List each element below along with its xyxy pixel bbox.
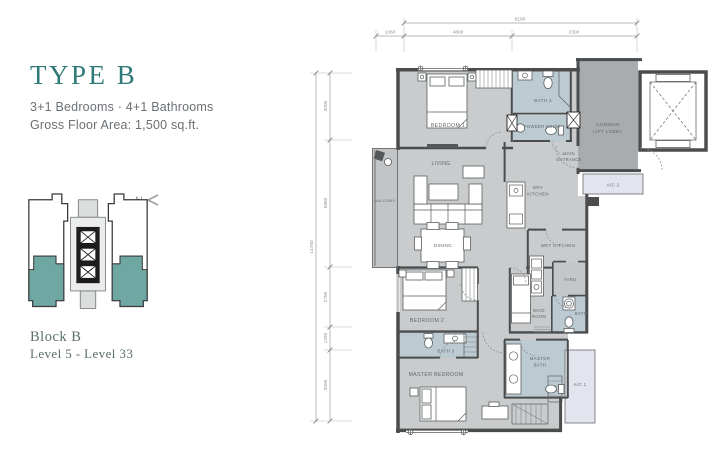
label-bedroom2: BEDROOM 2 bbox=[410, 318, 444, 324]
label-master-bedroom: MASTER BEDROOM bbox=[409, 372, 464, 378]
room-lift-lobby bbox=[578, 58, 638, 172]
dim-top-overall: 8180 bbox=[515, 17, 526, 23]
label-maid-room-1: MAID bbox=[533, 308, 545, 313]
label-lobby-2: LIFT LOBBY bbox=[593, 129, 622, 134]
label-balcony: BALCONY bbox=[374, 198, 395, 203]
label-living: LIVING bbox=[431, 161, 450, 167]
service-duct bbox=[588, 197, 599, 206]
dim-left-seg5: 3000 bbox=[323, 379, 329, 390]
keyplan-unit-right-highlight bbox=[112, 256, 147, 306]
dim-left-seg1: 3000 bbox=[323, 100, 329, 111]
label-lobby-1: COMMON bbox=[596, 122, 620, 127]
room-balcony bbox=[372, 148, 398, 268]
dimension-chain-left: 14750 3000 5850 2750 1250 3000 bbox=[309, 71, 352, 424]
label-master-bath-2: BATH bbox=[534, 363, 547, 368]
dry-kitchen-fixtures bbox=[507, 182, 525, 228]
label-maid-room-2: ROOM bbox=[532, 314, 547, 319]
key-plan bbox=[24, 188, 152, 326]
label-main-entrance-2: ENTRANCE bbox=[556, 157, 581, 162]
tv-console bbox=[427, 144, 458, 148]
block-name: Block B bbox=[30, 329, 81, 346]
label-powder-room: POWDER ROOM bbox=[524, 124, 560, 129]
dimension-chain-top: 8180 1060 4800 2300 bbox=[374, 17, 640, 53]
label-dry-kitchen-2: KITCHEN bbox=[527, 192, 549, 197]
dim-top-seg1: 1060 bbox=[385, 30, 396, 36]
keyplan-unit-left-highlight bbox=[29, 256, 64, 306]
label-dry-kitchen-1: DRY bbox=[533, 185, 543, 190]
label-wet-kitchen: WET KITCHEN bbox=[541, 243, 576, 248]
keyplan-lift-cars bbox=[80, 231, 96, 279]
level-range: Level 5 - Level 33 bbox=[30, 346, 133, 362]
label-bedroom1: BEDROOM 1 bbox=[431, 123, 465, 129]
dim-top-seg3: 2300 bbox=[569, 30, 580, 36]
dim-left-seg4: 1250 bbox=[323, 332, 329, 343]
label-yard: YARD bbox=[564, 277, 577, 282]
floor-plan: BEDROOM 1 BATH 2 POWDER ROOM MAIN ENTRAN… bbox=[300, 0, 725, 450]
gross-floor-area: Gross Floor Area: 1,500 sq.ft. bbox=[30, 118, 199, 132]
dim-left-seg2: 5850 bbox=[323, 197, 329, 208]
label-maid-bath: BATH bbox=[575, 311, 587, 316]
label-main-entrance-1: MAIN bbox=[563, 151, 575, 156]
keyplan-core-bottom bbox=[80, 291, 96, 308]
dim-left-seg3: 2750 bbox=[323, 291, 329, 302]
label-master-bath-1: MASTER bbox=[530, 356, 550, 361]
lift-shaft bbox=[640, 72, 706, 150]
dim-top-seg2: 4800 bbox=[453, 30, 464, 36]
label-ac2: A/C 2 bbox=[607, 183, 620, 188]
label-ac1: A/C 1 bbox=[574, 382, 587, 387]
keyplan-core-top bbox=[78, 200, 97, 217]
label-bath2: BATH 2 bbox=[534, 98, 552, 103]
label-bath3: BATH 3 bbox=[437, 349, 454, 354]
label-dining: DINING bbox=[434, 243, 452, 248]
dim-left-overall: 14750 bbox=[309, 240, 315, 254]
page-title: TYPE B bbox=[30, 60, 137, 91]
unit-summary: 3+1 Bedrooms · 4+1 Bathrooms bbox=[30, 100, 213, 114]
wet-kitchen-fixtures bbox=[530, 256, 544, 296]
